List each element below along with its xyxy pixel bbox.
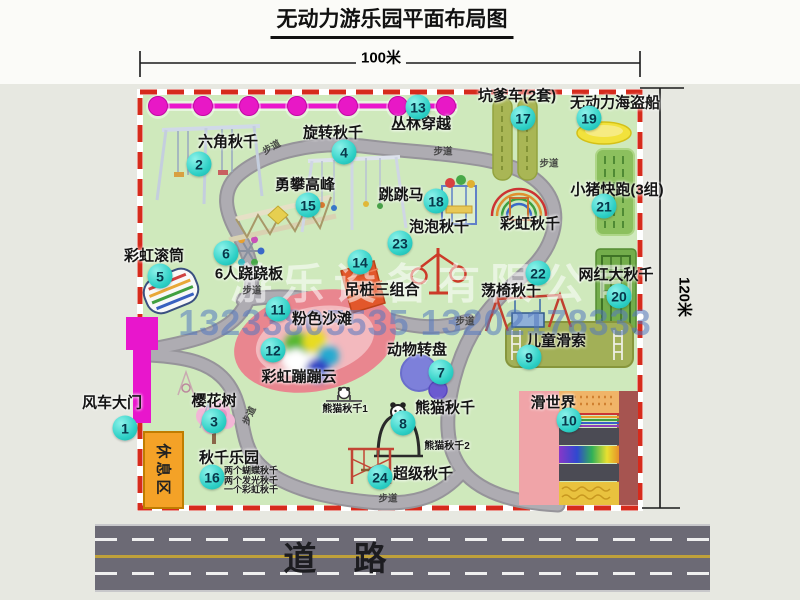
page-title: 无动力游乐园平面布局图 — [271, 3, 514, 39]
attraction-badge-1: 1 — [113, 416, 138, 441]
attraction-badge-24: 24 — [368, 465, 393, 490]
attraction-label-5: 彩虹滚筒 — [124, 249, 184, 264]
attraction-badge-18: 18 — [424, 189, 449, 214]
attraction-label-22: 荡椅秋千 — [481, 284, 541, 299]
attraction-label-1: 风车大门 — [82, 396, 142, 411]
road — [95, 524, 710, 592]
attraction-badge-12: 12 — [261, 338, 286, 363]
panda-swing-2-label: 熊猫秋千2 — [424, 442, 470, 452]
attraction-label-2: 六角秋千 — [198, 135, 258, 150]
footpath-label: 步道 — [378, 494, 397, 504]
road-center-line — [95, 555, 710, 558]
attraction-label-21: 小猪快跑(3组) — [570, 183, 663, 198]
attraction-label-14: 吊桩三组合 — [344, 283, 419, 298]
attraction-label-11: 粉色沙滩 — [292, 312, 352, 327]
attraction-badge-22: 22 — [526, 261, 551, 286]
road-label: 道 路 — [283, 532, 400, 580]
attraction-label-20: 网红大秋千 — [578, 268, 653, 283]
rest-area: 休息区 — [143, 431, 184, 509]
attraction-label-3: 樱花树 — [191, 394, 236, 409]
footpath-label: 步道 — [433, 147, 452, 157]
attraction-badge-17: 17 — [511, 106, 536, 131]
attraction-badge-2: 2 — [187, 152, 212, 177]
attraction-label-18: 跳跳马 — [378, 188, 423, 203]
attraction-badge-5: 5 — [148, 264, 173, 289]
attraction-label-12: 彩虹蹦蹦云 — [261, 370, 336, 385]
attraction-badge-11: 11 — [266, 297, 291, 322]
panda-swing-1-label: 熊猫秋千1 — [322, 405, 368, 415]
attraction-badge-7: 7 — [429, 360, 454, 385]
dimension-width-label: 100米 — [356, 47, 406, 68]
attraction-label-8: 熊猫秋千 — [415, 401, 475, 416]
attraction-badge-21: 21 — [592, 194, 617, 219]
rest-area-label: 休息区 — [153, 443, 174, 497]
dimension-height-label: 120米 — [675, 273, 696, 321]
attraction-badge-16: 16 — [200, 465, 225, 490]
attraction-label-7: 动物转盘 — [387, 343, 447, 358]
park-layout-map: 游乐设备有限公司 13233805535 13202178333 无动力游乐园平… — [0, 0, 800, 600]
attraction-badge-4: 4 — [332, 140, 357, 165]
attraction-badge-15: 15 — [296, 193, 321, 218]
road-lane-dash — [95, 572, 710, 575]
attraction-label-16: 秋千乐园 — [199, 451, 259, 466]
attraction-badge-3: 3 — [202, 409, 227, 434]
attraction-label-15: 勇攀高峰 — [275, 178, 335, 193]
attraction-badge-23: 23 — [388, 231, 413, 256]
attraction-badge-20: 20 — [607, 284, 632, 309]
footpath-label: 步道 — [455, 317, 474, 327]
road-lane-dash — [95, 538, 710, 541]
attraction-label-23: 泡泡秋千 — [409, 220, 469, 235]
attraction-badge-6: 6 — [214, 241, 239, 266]
footpath-label: 步道 — [539, 159, 558, 169]
attraction-label-17: 坑爹车(2套) — [478, 89, 556, 104]
attraction-badge-19: 19 — [577, 106, 602, 131]
footpath-label: 步道 — [242, 286, 261, 296]
attraction-badge-13: 13 — [406, 95, 431, 120]
attraction-badge-10: 10 — [557, 408, 582, 433]
attraction-label-24: 超级秋千 — [393, 467, 453, 482]
attraction-label-4: 旋转秋千 — [303, 126, 363, 141]
attraction-badge-8: 8 — [391, 411, 416, 436]
attraction-badge-14: 14 — [348, 250, 373, 275]
swing-park-note-1: 两个蝴蝶秋千 — [224, 467, 278, 476]
rainbow-swing-label: 彩虹秋千 — [500, 217, 560, 232]
swing-park-note-3: 一个彩虹秋千 — [224, 486, 278, 495]
attraction-badge-9: 9 — [517, 345, 542, 370]
attraction-label-6: 6人跷跷板 — [215, 267, 283, 282]
